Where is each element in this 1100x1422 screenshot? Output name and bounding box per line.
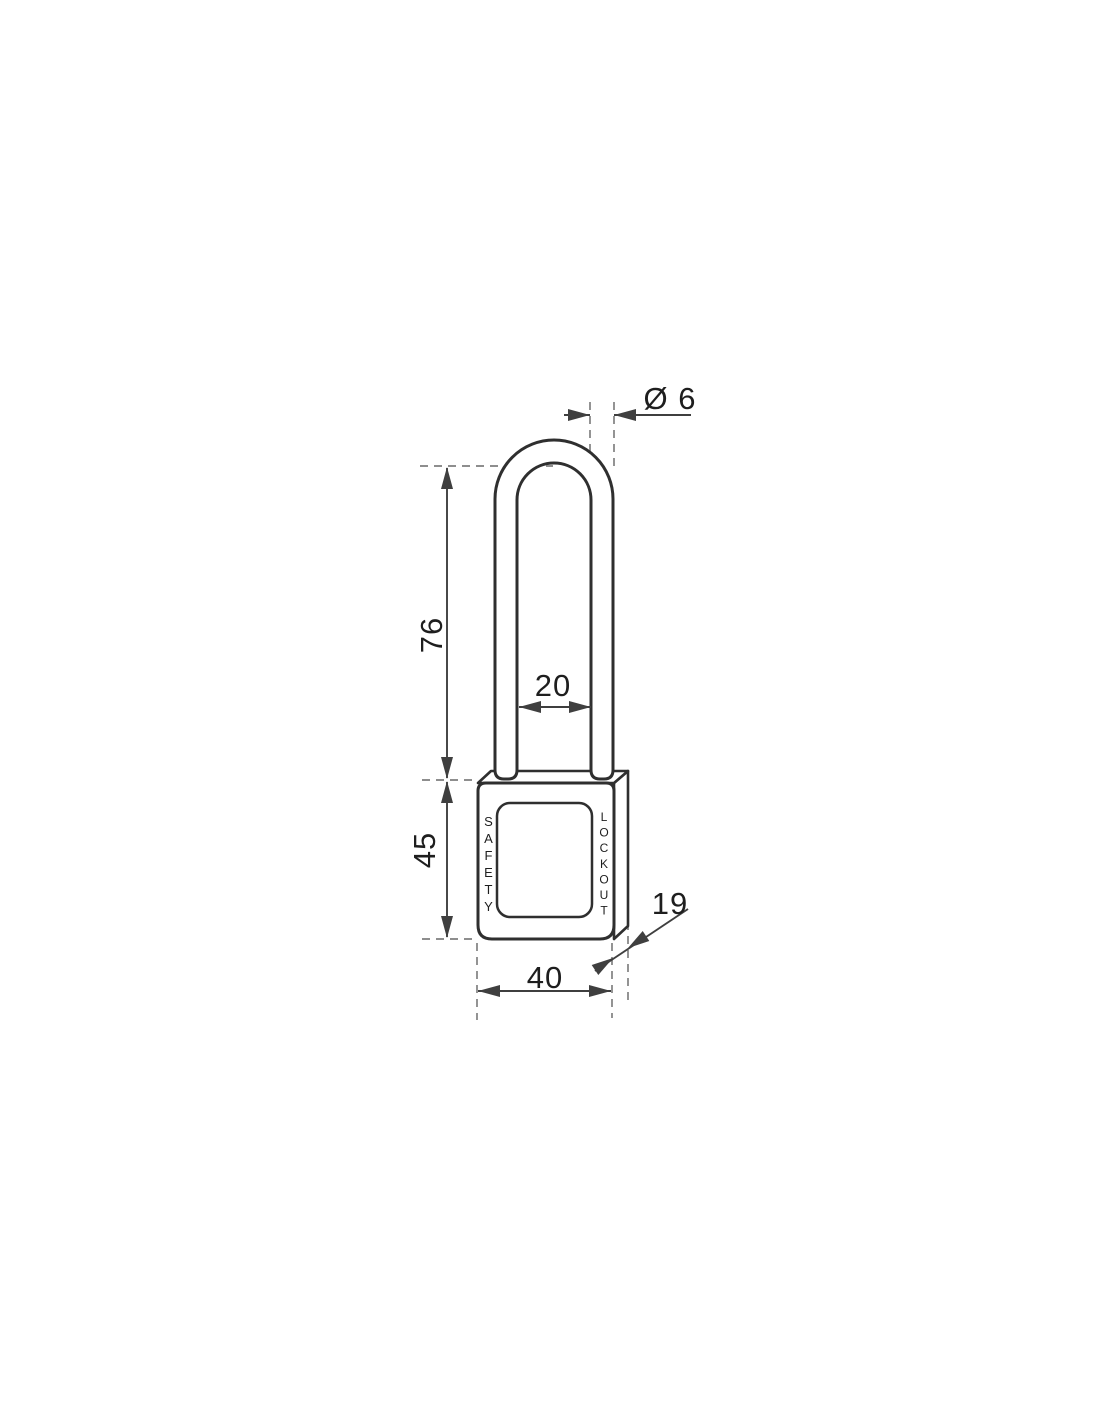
- safety-vertical-text: SAFETY: [480, 814, 496, 914]
- arrow-40-left: [478, 985, 500, 997]
- padlock-technical-drawing: Ø 6 76 45 20 40 19: [0, 0, 1100, 1422]
- arrow-diameter-left: [568, 409, 590, 421]
- arrow-19-front: [592, 958, 613, 975]
- label-window: [497, 803, 592, 917]
- arrow-76-bottom: [441, 757, 453, 779]
- arrow-19-back: [628, 931, 649, 948]
- dim-shackle-width-label: 20: [535, 668, 571, 703]
- dim-body-depth-label: 19: [652, 886, 688, 921]
- drawing-canvas: Ø 6 76 45 20 40 19 SAFETY LOCKOUT: [0, 0, 1100, 1422]
- shackle-outline: [495, 440, 613, 779]
- dim-shackle-height-label: 76: [414, 617, 449, 653]
- arrow-45-top: [441, 781, 453, 803]
- arrow-40-right: [589, 985, 611, 997]
- lockout-vertical-text: LOCKOUT: [595, 810, 611, 916]
- arrow-diameter-right: [614, 409, 636, 421]
- dim-body-width-label: 40: [527, 960, 563, 995]
- arrow-45-bottom: [441, 916, 453, 938]
- dim-shackle-diameter-label: Ø 6: [644, 381, 697, 416]
- body-right-face: [614, 771, 628, 939]
- arrow-20-right: [569, 701, 591, 713]
- arrow-76-top: [441, 467, 453, 489]
- dim-body-height-label: 45: [407, 832, 442, 868]
